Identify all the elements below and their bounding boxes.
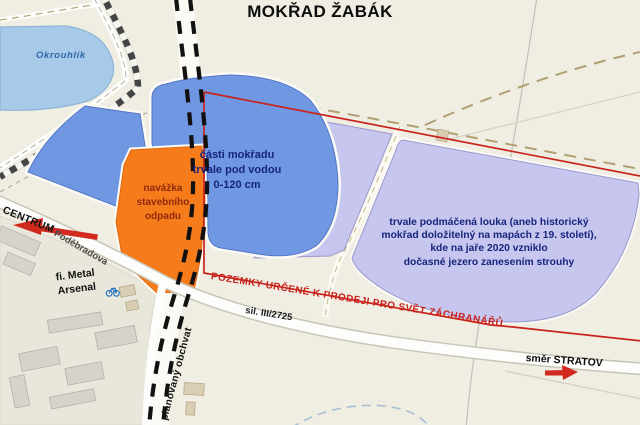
flooded-wetland-line-1: části mokřadu <box>167 148 307 163</box>
landfill-label: navážka stavebního odpadu <box>126 182 200 224</box>
wet-meadow-label: trvale podmáčená louka (aneb historický … <box>364 216 614 269</box>
landfill-line-1: navážka <box>126 182 200 196</box>
building <box>436 129 449 142</box>
wet-meadow-line-1: trvale podmáčená louka (aneb historický <box>364 216 614 229</box>
building <box>184 382 205 395</box>
wet-meadow-line-2: mokřad doložitelný na mapách z 19. stole… <box>364 229 614 242</box>
landfill-line-3: odpadu <box>126 210 200 224</box>
landfill-line-2: stavebního <box>126 196 200 210</box>
wet-meadow-line-4: dočasné jezero zanesením strouhy <box>364 256 614 269</box>
building <box>125 300 138 311</box>
flooded-wetland-line-2: trvale pod vodou <box>167 163 307 178</box>
map-title: MOKŘAD ŽABÁK <box>0 3 640 20</box>
map-canvas: MOKŘAD ŽABÁK Okrouhlík části mokřadu trv… <box>0 0 640 425</box>
building <box>186 402 196 415</box>
lake-name-label: Okrouhlík <box>36 51 86 61</box>
wet-meadow-line-3: kde na jaře 2020 vzniklo <box>364 242 614 255</box>
